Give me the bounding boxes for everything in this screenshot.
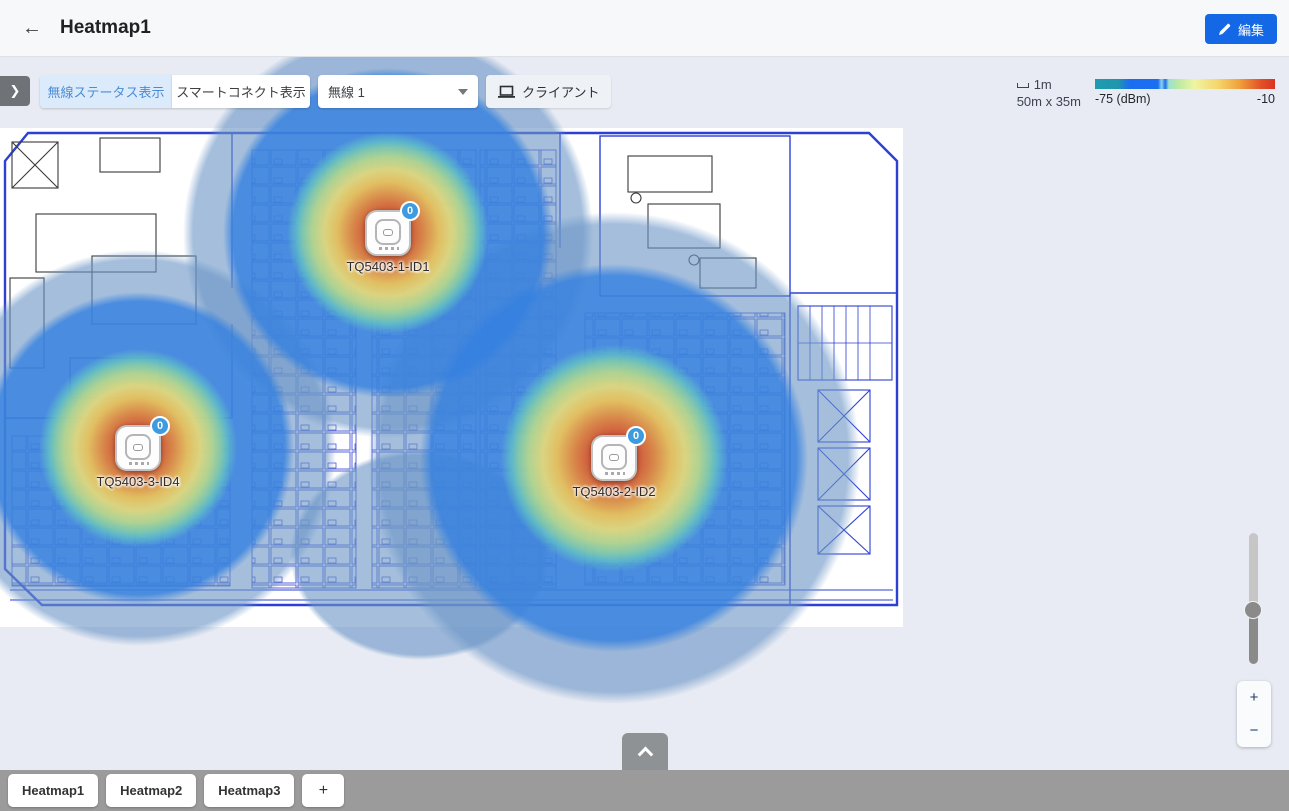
- zoom-in-button[interactable]: +: [1237, 681, 1271, 714]
- client-count-badge: 0: [400, 201, 420, 221]
- access-point-label: TQ5403-2-ID2: [572, 484, 655, 499]
- signal-max-label: -10: [1257, 92, 1275, 106]
- chevron-up-icon: [637, 747, 653, 763]
- signal-gradient-bar: [1095, 79, 1275, 89]
- radio-select-dropdown[interactable]: 無線 1: [318, 75, 478, 108]
- caret-down-icon: [458, 89, 468, 95]
- scale-bar-icon: [1017, 83, 1029, 88]
- laptop-icon: [498, 85, 515, 99]
- client-button[interactable]: クライアント: [486, 75, 611, 108]
- client-count-badge: 0: [150, 416, 170, 436]
- add-heatmap-tab-button[interactable]: +: [302, 774, 344, 807]
- tabbar-collapse-button[interactable]: [622, 733, 668, 770]
- tab-heatmap2[interactable]: Heatmap2: [106, 774, 196, 807]
- radio-select-value: 無線 1: [328, 82, 365, 101]
- back-arrow-icon[interactable]: ←: [22, 18, 42, 38]
- access-point-marker[interactable]: 0 TQ5403-2-ID2: [591, 435, 637, 481]
- access-point-marker[interactable]: 0 TQ5403-1-ID1: [365, 210, 411, 256]
- edit-button-label: 編集: [1238, 20, 1264, 39]
- edit-button[interactable]: 編集: [1205, 14, 1277, 44]
- top-bar: ← Heatmap1 編集: [0, 0, 1289, 57]
- client-button-label: クライアント: [522, 82, 599, 101]
- zoom-out-button[interactable]: −: [1237, 714, 1271, 747]
- map-dimensions: 50m x 35m: [1017, 93, 1081, 110]
- heatmap-tab-bar: Heatmap1 Heatmap2 Heatmap3 +: [0, 770, 1289, 811]
- sidebar-expand-button[interactable]: ❯: [0, 76, 30, 106]
- scale-label: 1m: [1034, 76, 1052, 93]
- zoom-slider-thumb[interactable]: [1244, 601, 1262, 619]
- heatmap-canvas: 0 TQ5403-1-ID1 0 TQ5403-3-ID4 0 TQ5403-2…: [0, 0, 1289, 811]
- page-title: Heatmap1: [60, 17, 151, 39]
- access-point-label: TQ5403-3-ID4: [96, 474, 179, 489]
- tab-heatmap1[interactable]: Heatmap1: [8, 774, 98, 807]
- zoom-slider[interactable]: [1249, 533, 1258, 664]
- zoom-button-panel: + −: [1237, 681, 1271, 747]
- wireless-status-toggle[interactable]: 無線ステータス表示: [40, 75, 172, 108]
- access-point-marker[interactable]: 0 TQ5403-3-ID4: [115, 425, 161, 471]
- tab-heatmap3[interactable]: Heatmap3: [204, 774, 294, 807]
- client-count-badge: 0: [626, 426, 646, 446]
- floorplan-image: [0, 128, 903, 627]
- signal-min-label: -75 (dBm): [1095, 92, 1151, 106]
- access-point-label: TQ5403-1-ID1: [346, 259, 429, 274]
- chevron-right-icon: ❯: [10, 83, 21, 99]
- pencil-icon: [1218, 23, 1231, 36]
- map-legend: 1m 50m x 35m -75 (dBm) -10: [1017, 76, 1275, 110]
- smart-connect-toggle[interactable]: スマートコネクト表示: [172, 75, 310, 108]
